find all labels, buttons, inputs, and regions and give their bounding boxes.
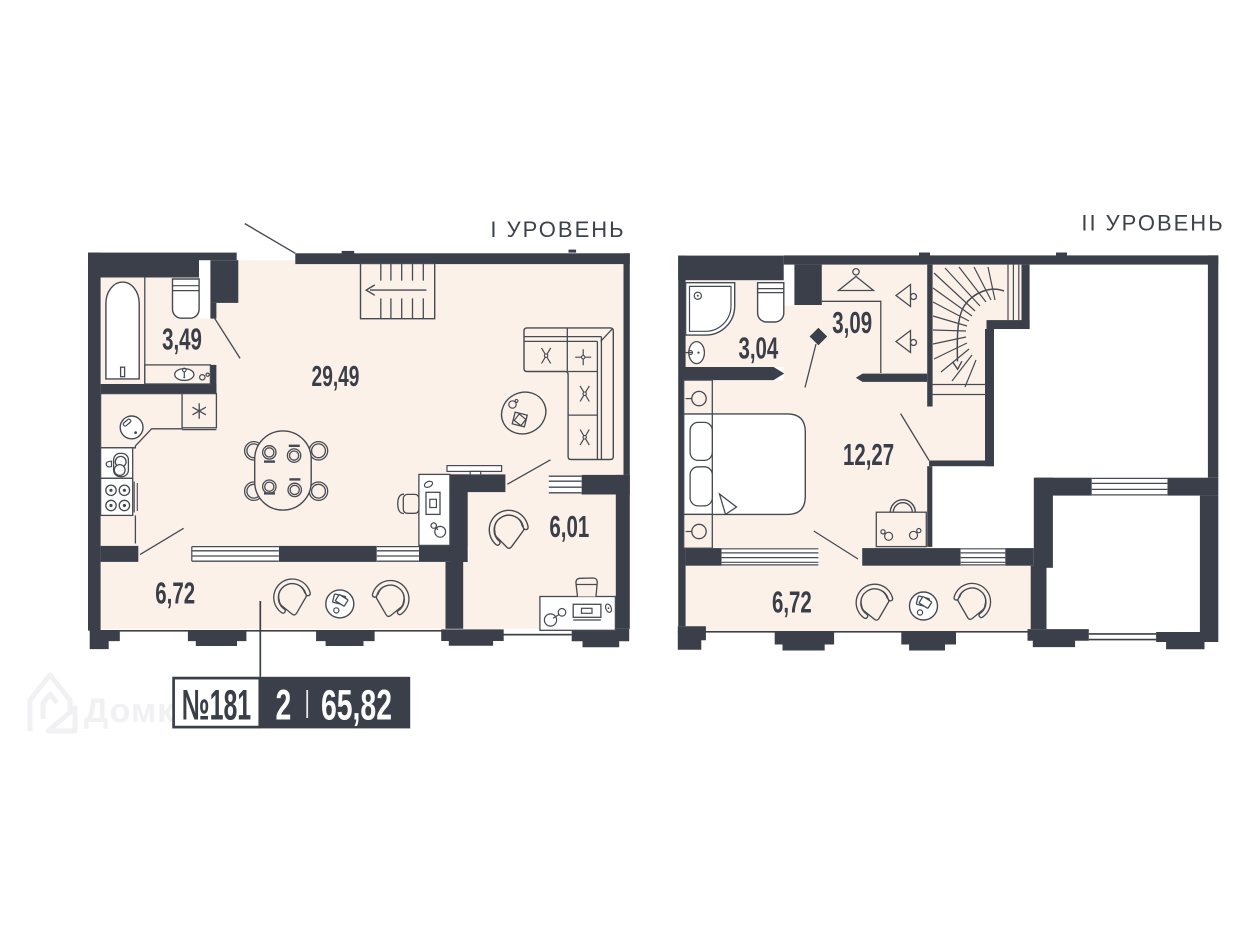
- svg-text:6,72: 6,72: [772, 584, 812, 619]
- svg-text:3,09: 3,09: [832, 304, 872, 339]
- svg-text:I УРОВЕНЬ: I УРОВЕНЬ: [490, 217, 625, 242]
- svg-text:29,49: 29,49: [312, 361, 360, 393]
- svg-text:2: 2: [276, 681, 292, 729]
- svg-text:3,49: 3,49: [162, 321, 202, 356]
- svg-text:6,01: 6,01: [549, 509, 589, 544]
- svg-text:3,04: 3,04: [738, 330, 778, 365]
- svg-text:65,82: 65,82: [321, 681, 392, 729]
- svg-text:№181: №181: [182, 682, 251, 730]
- svg-text:6,72: 6,72: [155, 575, 195, 610]
- svg-text:II УРОВЕНЬ: II УРОВЕНЬ: [1081, 210, 1224, 235]
- svg-text:12,27: 12,27: [843, 437, 894, 472]
